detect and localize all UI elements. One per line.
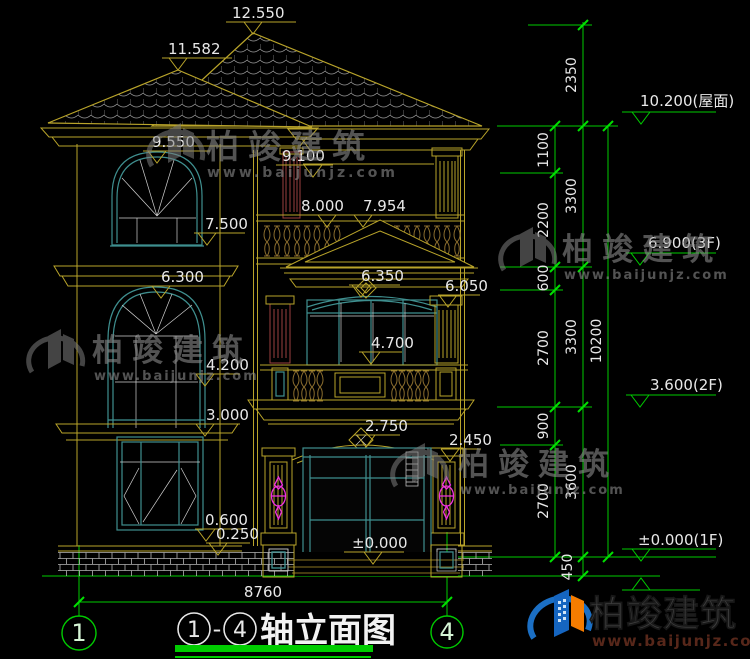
footer-logo: 柏竣建筑 www.baijunjz.com: [530, 589, 750, 650]
elev-11582: 11.582: [168, 40, 221, 58]
watermark-brand: 柏竣建筑: [562, 232, 722, 268]
dim-mid-450: 450: [560, 554, 576, 581]
dim-inner-1100: 1100: [536, 132, 552, 168]
elev-0000: ±0.000: [352, 534, 408, 552]
level-label-1f: ±0.000(1F): [638, 531, 723, 549]
company-logo-icon: [530, 589, 589, 638]
watermark-brand: 柏竣建筑: [458, 447, 618, 483]
title-dash: -: [213, 615, 222, 643]
watermark-right: 柏竣建筑 www.baijunjz.com: [501, 227, 729, 283]
watermark-url: www.baijunjz.com: [207, 165, 398, 181]
band-left-2f: [56, 424, 238, 440]
elev-3000: 3.000: [206, 406, 249, 424]
level-label-2f: 3.600(2F): [650, 376, 723, 394]
pilaster-2f-right: [430, 296, 462, 363]
watermark-url: www.baijunjz.com: [94, 369, 259, 384]
level-flag-roof: [622, 112, 716, 124]
title-underline-thin: [175, 656, 371, 658]
footer-brand: 柏竣建筑: [589, 594, 737, 635]
title-axis-start: 1: [187, 618, 201, 643]
dim-outer-10200: 10200: [589, 319, 605, 364]
watermark-top: 柏竣建筑 www.baijunjz.com: [149, 123, 398, 181]
dim-mid-3300a: 3300: [564, 178, 580, 214]
title-axis-end: 4: [233, 618, 247, 643]
axis-bubble-left: 1: [62, 616, 96, 650]
watermark-url: www.baijunjz.com: [460, 483, 625, 498]
dim-overall-width: 8760: [244, 583, 282, 601]
cad-elevation-drawing: 1100 2200 600 2700 900 2700 2350 3300 33…: [0, 0, 750, 659]
dim-inner-600: 600: [536, 265, 552, 292]
axis-bubble-left-number: 1: [71, 619, 86, 647]
level-flag-1f: [622, 549, 716, 561]
drawing-surface: 1100 2200 600 2700 900 2700 2350 3300 33…: [0, 0, 750, 659]
window-2f-center: [307, 300, 437, 365]
building-elevation: [41, 33, 492, 577]
cornice-2f: [248, 400, 474, 424]
level-label-roof: 10.200(屋面): [640, 92, 734, 110]
axis-bubble-right-number: 4: [439, 618, 454, 646]
elev-6050: 6.050: [445, 277, 488, 295]
dim-mid-3300b: 3300: [564, 319, 580, 355]
axis-bubble-right: 4: [431, 616, 463, 648]
dim-inner-900: 900: [536, 413, 552, 440]
dim-mid-2350: 2350: [564, 57, 580, 93]
watermark-left: 柏竣建筑 www.baijunjz.com: [29, 329, 259, 384]
elev-6300: 6.300: [161, 268, 204, 286]
watermark-brand: 柏竣建筑: [206, 127, 374, 166]
elev-12550: 12.550: [232, 4, 285, 22]
elev-0250: 0.250: [216, 525, 259, 543]
footer-url: www.baijunjz.com: [592, 632, 750, 650]
dim-inner-2200: 2200: [536, 202, 552, 238]
elev-8000: 8.000: [301, 197, 344, 215]
elev-7500: 7.500: [205, 215, 248, 233]
window-3f-left: [110, 152, 204, 246]
dim-inner-2700a: 2700: [536, 330, 552, 366]
level-flag-2f: [626, 395, 716, 407]
elev-6350: 6.350: [361, 267, 404, 285]
elev-4700: 4.700: [371, 334, 414, 352]
window-1f-left: [117, 437, 203, 530]
pilaster-3f-right: [432, 148, 462, 218]
title-block: 1 - 4 轴立面图: [175, 611, 396, 658]
watermark-brand: 柏竣建筑: [92, 333, 252, 369]
cornice-left-63: [54, 266, 238, 286]
watermark-url: www.baijunjz.com: [564, 268, 729, 283]
elev-7954: 7.954: [363, 197, 406, 215]
pilaster-2f-left: [266, 296, 294, 363]
level-flag-ground: [622, 578, 700, 590]
title-underline-thick: [175, 645, 373, 652]
elev-2750: 2.750: [365, 417, 408, 435]
balcony-2f: [260, 365, 468, 401]
